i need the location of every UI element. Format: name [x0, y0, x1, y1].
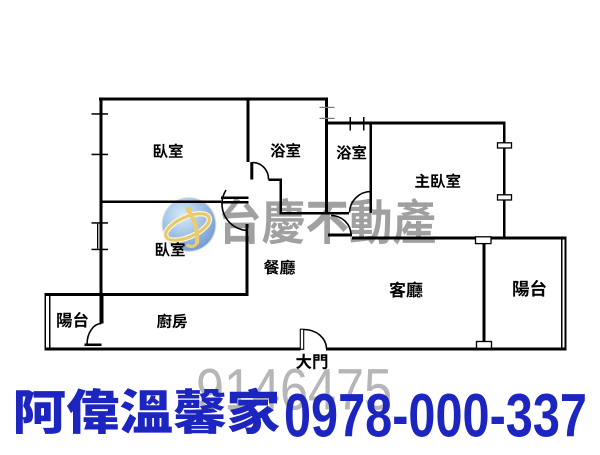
- svg-text:0978-000-337: 0978-000-337: [284, 381, 587, 450]
